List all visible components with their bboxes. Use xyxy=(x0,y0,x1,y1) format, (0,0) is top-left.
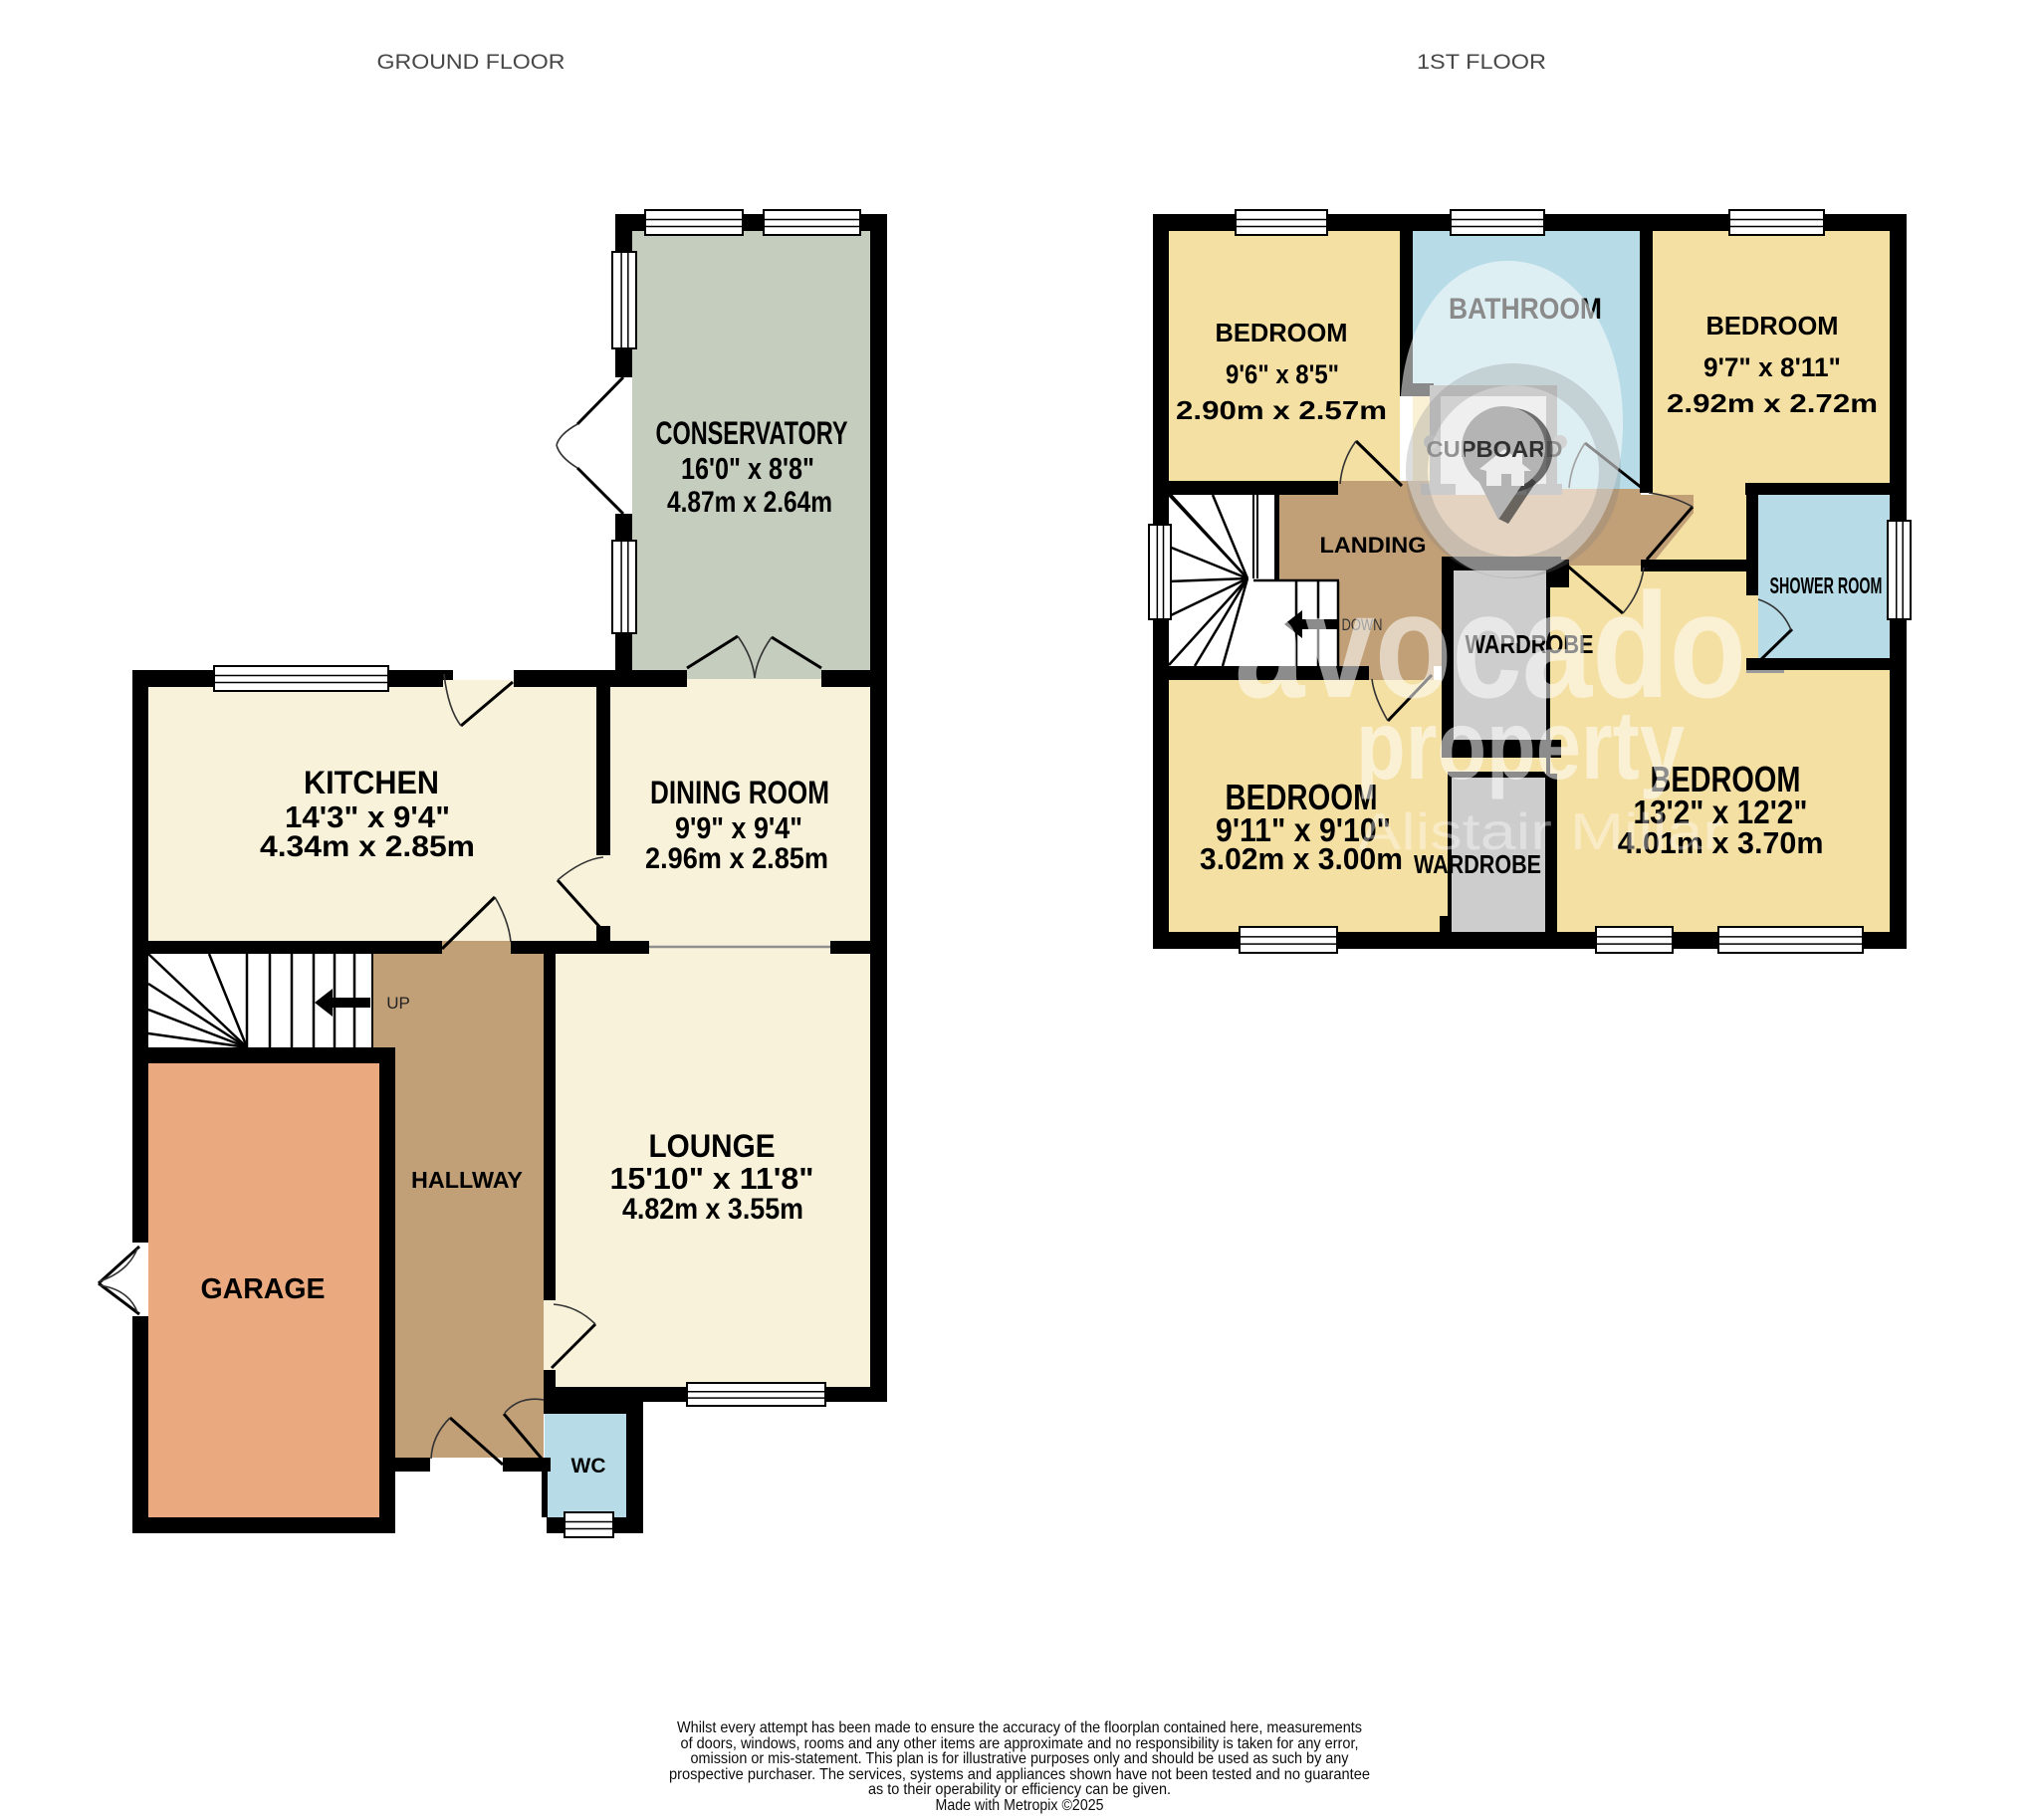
svg-text:4.82m x 3.55m: 4.82m x 3.55m xyxy=(622,1193,803,1226)
svg-text:CONSERVATORY: CONSERVATORY xyxy=(656,415,848,451)
svg-text:property: property xyxy=(1356,690,1685,799)
svg-text:15'10" x 11'8": 15'10" x 11'8" xyxy=(610,1161,814,1196)
svg-text:KITCHEN: KITCHEN xyxy=(304,765,439,800)
svg-text:Made with Metropix ©2025: Made with Metropix ©2025 xyxy=(936,1797,1104,1814)
svg-text:WC: WC xyxy=(571,1455,606,1478)
svg-text:as to their operability or eff: as to their operability or efficiency ca… xyxy=(868,1781,1171,1798)
svg-text:GARAGE: GARAGE xyxy=(201,1273,326,1305)
svg-text:2.96m x 2.85m: 2.96m x 2.85m xyxy=(645,842,828,875)
svg-text:2.92m x 2.72m: 2.92m x 2.72m xyxy=(1667,388,1878,418)
svg-text:4.34m x 2.85m: 4.34m x 2.85m xyxy=(260,830,475,863)
svg-text:14'3" x 9'4": 14'3" x 9'4" xyxy=(285,799,450,834)
svg-text:DINING ROOM: DINING ROOM xyxy=(650,775,829,810)
svg-text:BEDROOM: BEDROOM xyxy=(1706,311,1839,341)
svg-text:UP: UP xyxy=(386,994,410,1013)
svg-text:9'7" x 8'11": 9'7" x 8'11" xyxy=(1703,352,1841,382)
svg-text:1ST FLOOR: 1ST FLOOR xyxy=(1417,51,1546,74)
svg-text:BEDROOM: BEDROOM xyxy=(1216,318,1348,347)
svg-text:Alistair Millar: Alistair Millar xyxy=(1358,803,1724,861)
svg-text:LOUNGE: LOUNGE xyxy=(649,1128,776,1164)
svg-text:9'6" x 8'5": 9'6" x 8'5" xyxy=(1226,359,1339,389)
svg-text:HALLWAY: HALLWAY xyxy=(411,1167,523,1193)
svg-text:LANDING: LANDING xyxy=(1320,533,1427,558)
svg-text:2.90m x 2.57m: 2.90m x 2.57m xyxy=(1176,395,1387,425)
svg-text:SHOWER ROOM: SHOWER ROOM xyxy=(1770,572,1883,598)
svg-text:9'9" x 9'4": 9'9" x 9'4" xyxy=(675,810,802,845)
svg-text:16'0" x 8'8": 16'0" x 8'8" xyxy=(681,451,814,486)
svg-text:4.87m x 2.64m: 4.87m x 2.64m xyxy=(667,486,832,519)
svg-text:GROUND FLOOR: GROUND FLOOR xyxy=(377,51,566,74)
svg-text:Whilst every attempt has been: Whilst every attempt has been made to en… xyxy=(677,1719,1362,1736)
svg-text:omission or mis-statement. Thi: omission or mis-statement. This plan is … xyxy=(691,1750,1349,1767)
